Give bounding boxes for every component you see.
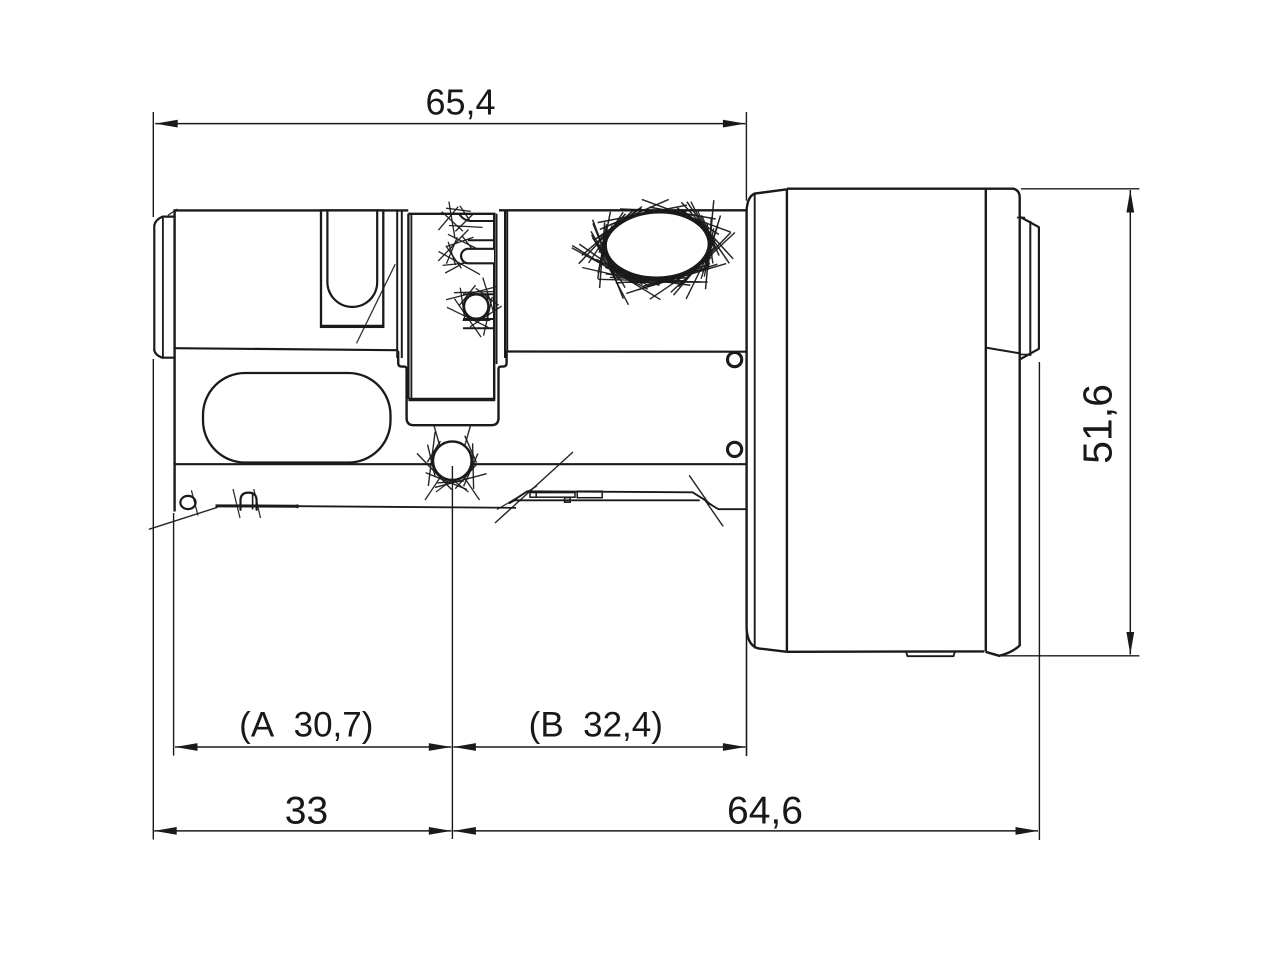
svg-text:65,4: 65,4 bbox=[425, 82, 495, 123]
svg-text:64,6: 64,6 bbox=[727, 790, 803, 833]
svg-text:(B 32,4): (B 32,4) bbox=[529, 705, 663, 744]
svg-text:33: 33 bbox=[285, 790, 328, 833]
svg-text:(A 30,7): (A 30,7) bbox=[239, 705, 373, 744]
svg-text:51,6: 51,6 bbox=[1075, 384, 1121, 464]
